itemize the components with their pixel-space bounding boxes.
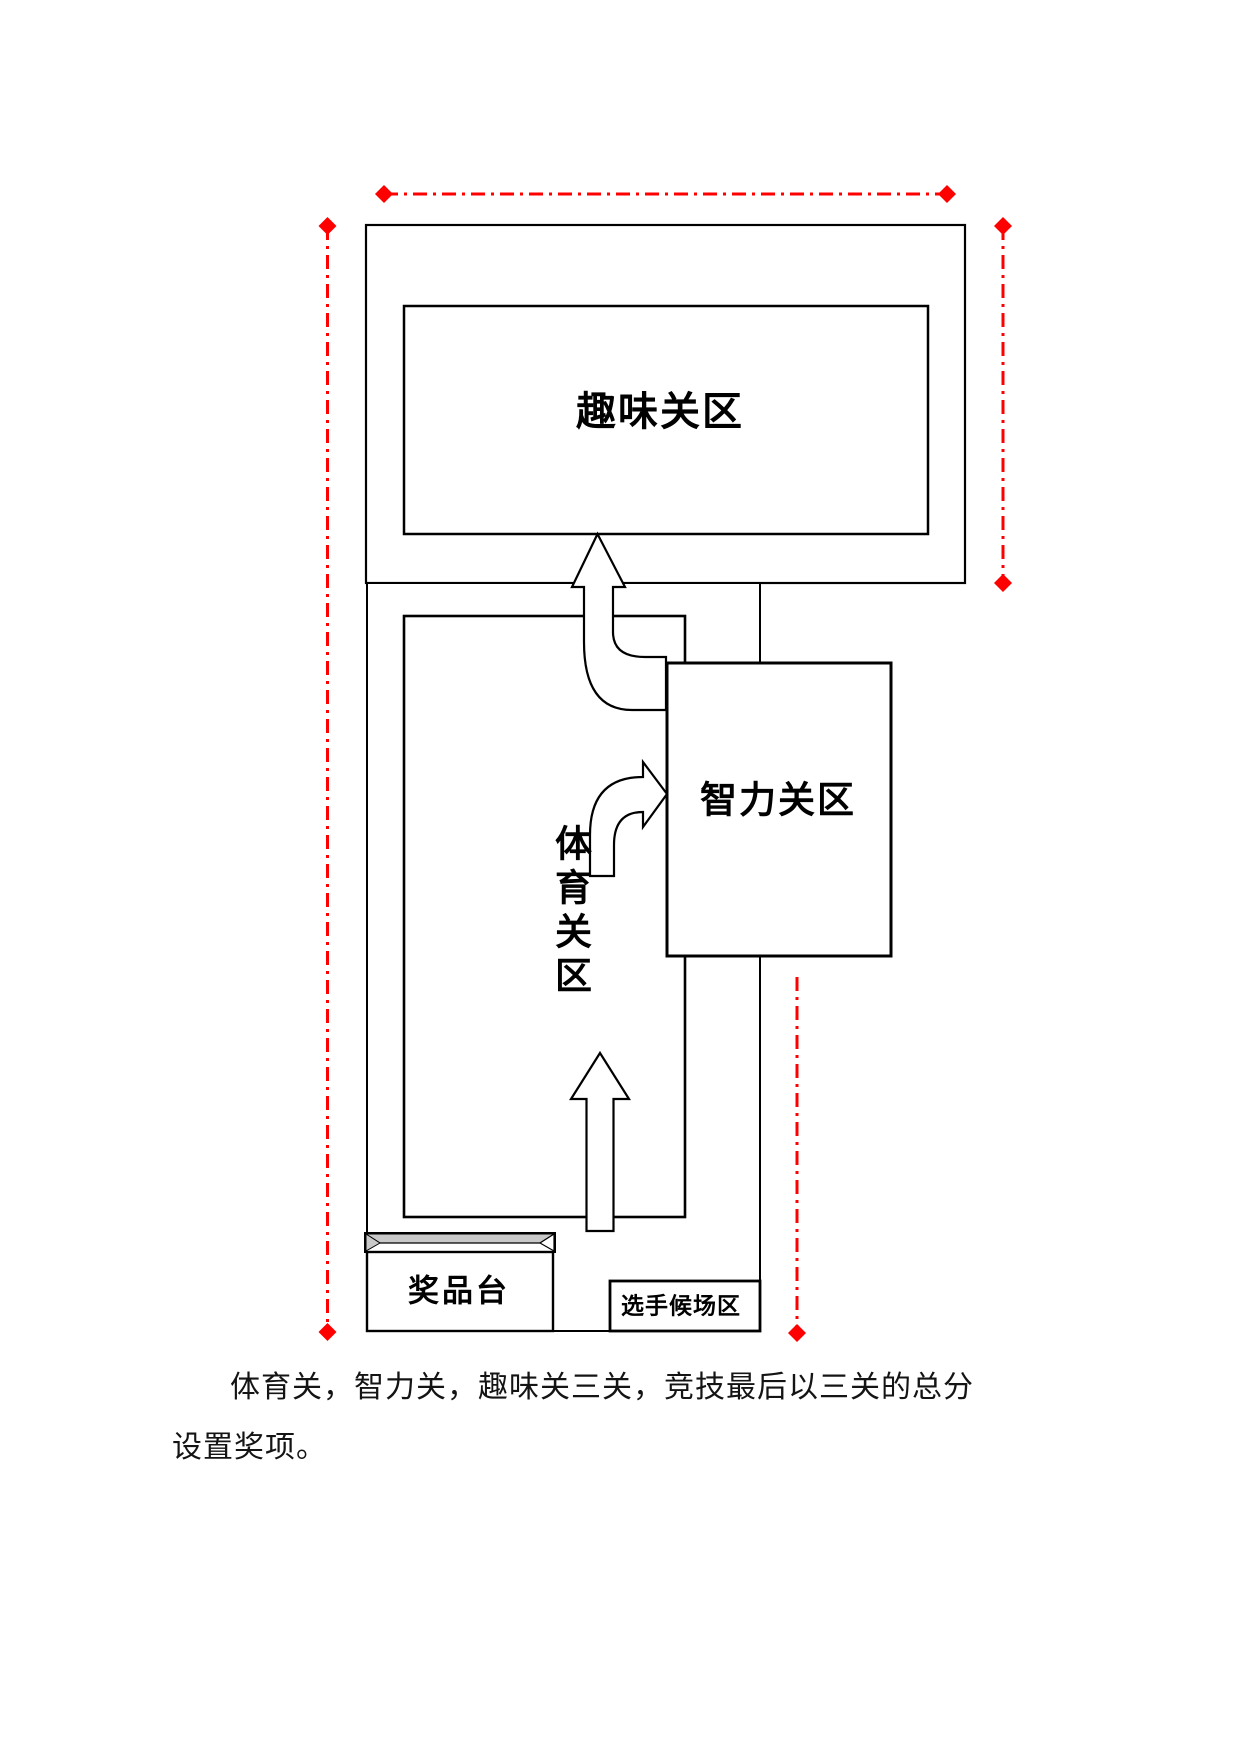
caption-line-2: 设置奖项。 xyxy=(172,1433,327,1463)
waiting-area-label: 选手候场区 xyxy=(621,1295,741,1318)
intelligence-zone-label: 智力关区 xyxy=(700,782,856,819)
dimension-line-left xyxy=(319,217,337,1341)
fun-zone-label: 趣味关区 xyxy=(576,392,744,432)
dimension-line-top xyxy=(375,185,956,203)
dimension-line-right-upper xyxy=(994,217,1012,592)
prize-table-label: 奖品台 xyxy=(408,1277,510,1308)
venue-diagram xyxy=(0,0,1241,1754)
sports-zone-label: 体育关区 xyxy=(552,824,589,1000)
diamond-endpoint xyxy=(788,1324,806,1342)
diamond-endpoint xyxy=(938,185,956,203)
diamond-endpoint xyxy=(319,1323,337,1341)
prize-table-3d-top xyxy=(365,1233,555,1252)
diamond-endpoint xyxy=(994,574,1012,592)
document-page: 趣味关区 智力关区 体育关区 奖品台 选手候场区 体育关，智力关，趣味关三关，竞… xyxy=(0,0,1241,1754)
diamond-endpoint xyxy=(319,217,337,235)
diamond-endpoint xyxy=(994,217,1012,235)
caption-line-1: 体育关，智力关，趣味关三关，竞技最后以三关的总分 xyxy=(230,1373,974,1403)
diamond-endpoint xyxy=(375,185,393,203)
dimension-line-right-lower xyxy=(788,977,806,1342)
